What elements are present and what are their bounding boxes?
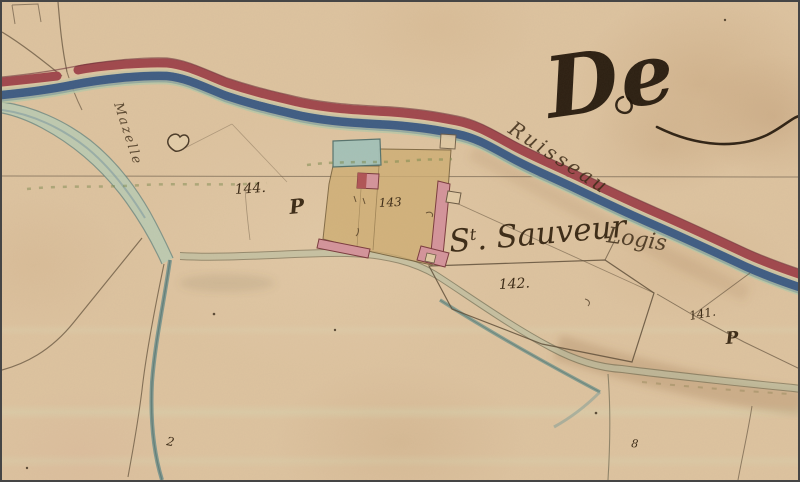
map-drawing: De Ruisseau Mazelle St. Sauveur Logis 14… [2, 2, 798, 480]
paper-grain-overlay [2, 2, 798, 480]
cadastral-map: De Ruisseau Mazelle St. Sauveur Logis 14… [0, 0, 800, 482]
